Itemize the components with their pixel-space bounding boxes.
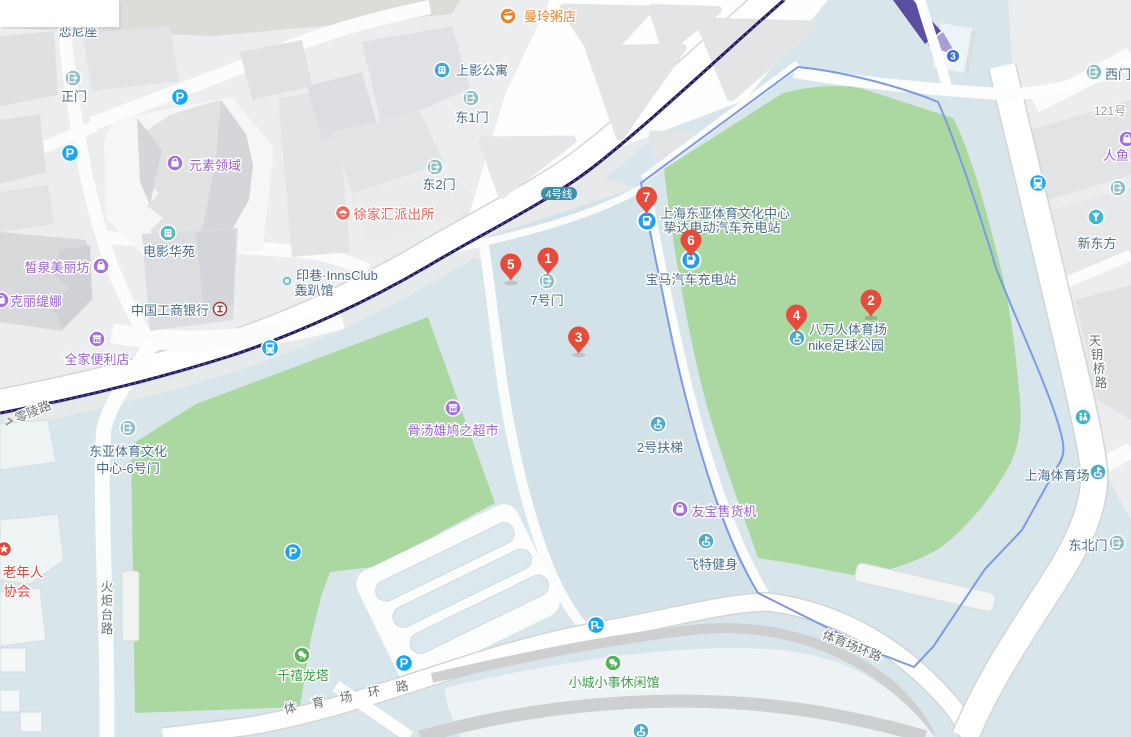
svg-text:中国工商银行: 中国工商银行 [131, 303, 209, 318]
svg-text:新东方: 新东方 [1077, 236, 1116, 251]
svg-text:东2门: 东2门 [422, 177, 455, 192]
svg-text:上海东亚体育文化中心: 上海东亚体育文化中心 [660, 206, 790, 221]
svg-text:炬: 炬 [101, 594, 114, 608]
svg-text:东北门: 东北门 [1068, 538, 1107, 553]
svg-text:骨汤雄鸠之超市: 骨汤雄鸠之超市 [407, 423, 498, 438]
svg-text:宝马汽车充电站: 宝马汽车充电站 [645, 272, 736, 287]
svg-text:上海体育场: 上海体育场 [1024, 468, 1089, 483]
svg-text:东1门: 东1门 [455, 110, 488, 125]
svg-text:小城小事休闲馆: 小城小事休闲馆 [568, 675, 659, 690]
svg-text:3: 3 [950, 52, 956, 63]
svg-text:7号门: 7号门 [530, 293, 563, 308]
svg-text:火: 火 [101, 580, 114, 594]
svg-text:克丽缇娜: 克丽缇娜 [10, 294, 62, 309]
svg-text:轰趴馆: 轰趴馆 [294, 283, 333, 298]
svg-text:天: 天 [1089, 334, 1102, 348]
svg-text:钥: 钥 [1091, 348, 1104, 362]
svg-text:5: 5 [507, 257, 515, 272]
svg-text:友宝售货机: 友宝售货机 [691, 504, 756, 519]
svg-text:桥: 桥 [1093, 362, 1106, 376]
svg-text:飞特健身: 飞特健身 [686, 557, 738, 572]
svg-text:2: 2 [867, 293, 875, 308]
svg-text:八万人体育场: 八万人体育场 [809, 322, 887, 337]
svg-text:7: 7 [643, 190, 651, 205]
svg-text:元素领域: 元素领域 [189, 158, 241, 173]
svg-text:正门: 正门 [61, 89, 87, 104]
svg-text:徐家汇派出所: 徐家汇派出所 [354, 206, 435, 222]
svg-text:3: 3 [575, 330, 583, 345]
svg-text:nike足球公园: nike足球公园 [808, 338, 884, 353]
svg-text:路: 路 [101, 621, 114, 636]
svg-text:皙泉美丽坊: 皙泉美丽坊 [24, 260, 89, 275]
svg-text:4: 4 [793, 308, 801, 323]
svg-text:中心-6号门: 中心-6号门 [96, 461, 160, 476]
svg-text:印巷·InnsClub: 印巷·InnsClub [296, 268, 378, 283]
svg-text:台: 台 [101, 607, 114, 622]
svg-text:上影公寓: 上影公寓 [456, 63, 508, 78]
svg-text:千禧龙塔: 千禧龙塔 [277, 668, 329, 683]
svg-text:电影华苑: 电影华苑 [143, 244, 195, 259]
svg-text:2号扶梯: 2号扶梯 [637, 440, 683, 455]
svg-text:挚达电动汽车充电站: 挚达电动汽车充电站 [663, 220, 780, 235]
svg-text:121号: 121号 [1094, 104, 1126, 118]
svg-text:东亚体育文化: 东亚体育文化 [89, 444, 167, 459]
svg-text:曼玲粥店: 曼玲粥店 [524, 9, 576, 24]
svg-text:全家便利店: 全家便利店 [64, 352, 129, 367]
svg-text:西门: 西门 [1105, 67, 1131, 82]
svg-text:人鱼: 人鱼 [1103, 148, 1129, 163]
svg-text:4号线: 4号线 [546, 188, 573, 201]
svg-text:老年人: 老年人 [3, 565, 44, 580]
svg-text:1: 1 [544, 251, 552, 266]
svg-text:路: 路 [1095, 375, 1108, 390]
svg-text:协会: 协会 [4, 584, 31, 599]
svg-text:6: 6 [687, 233, 695, 248]
